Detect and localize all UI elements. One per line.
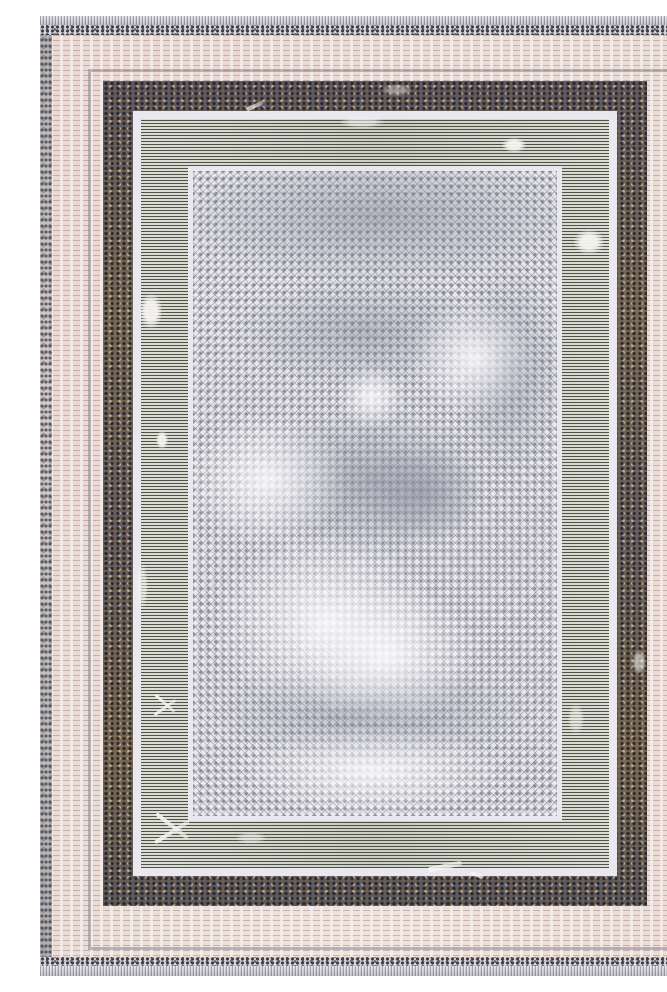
guard-stripe-bottom xyxy=(40,957,667,966)
rug-selvedge-left xyxy=(40,25,52,966)
rug-outer-border xyxy=(40,16,667,976)
worn-light-cloud xyxy=(237,726,506,816)
distress-cloud xyxy=(229,274,502,390)
distress-cloud xyxy=(360,442,484,545)
fringe-top xyxy=(40,16,667,25)
distress-cloud xyxy=(251,403,491,558)
distress-cloud xyxy=(208,661,536,764)
trellis-field xyxy=(193,171,557,816)
fringe-bottom xyxy=(40,966,667,976)
worn-light-cloud xyxy=(215,532,433,713)
worn-light-cloud xyxy=(339,365,405,430)
mottled-charcoal-border xyxy=(103,81,647,906)
worn-light-cloud xyxy=(411,300,535,416)
worn-light-cloud xyxy=(295,584,477,726)
guard-stripe-top xyxy=(40,25,667,35)
worn-light-cloud xyxy=(193,416,346,545)
distress-cloud xyxy=(455,261,557,480)
distress-cloud xyxy=(193,171,557,287)
rug-product-photo xyxy=(40,16,667,976)
